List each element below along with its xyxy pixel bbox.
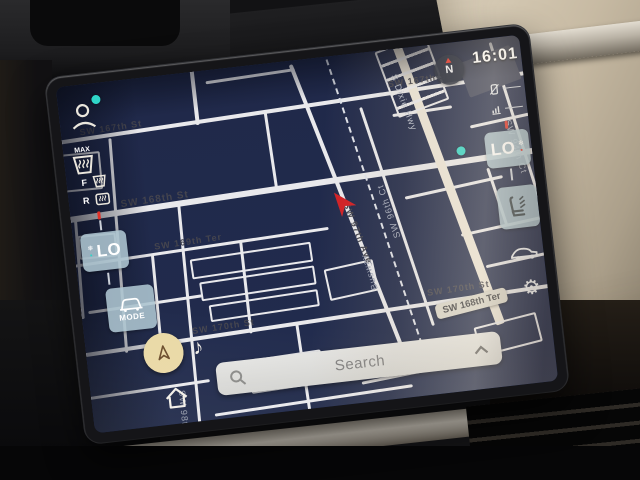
driver-temp-control[interactable]: ❄ ▪ LO: [80, 230, 130, 273]
profile-notification-dot: [91, 95, 101, 105]
transit-stop-dot: [456, 146, 466, 156]
drive-mode-button[interactable]: MODE: [105, 284, 158, 333]
signal-icon: [491, 103, 503, 115]
passenger-temp-control[interactable]: LO ❄ ▪: [484, 128, 532, 169]
status-divider: [503, 86, 521, 90]
media-button[interactable]: ♪: [185, 334, 212, 363]
screen-content: SW 167th St SW 167th St SW 168th St SW 1…: [56, 35, 558, 434]
front-defrost-icon: [89, 173, 110, 189]
dashboard-bottom: [0, 446, 640, 480]
seat-mini-icon: ▪: [90, 252, 93, 259]
phone-icon: [488, 83, 500, 95]
vehicle-settings-button[interactable]: [506, 240, 542, 266]
passenger-seat-climate-button[interactable]: [496, 184, 540, 230]
front-defrost-label: F: [81, 178, 88, 189]
rear-defrost-icon: [92, 191, 113, 207]
seat-mini-icon: ▪: [520, 147, 523, 154]
navigation-arrow-icon: [152, 342, 174, 364]
touchscreen: SW 167th St SW 167th St SW 168th St SW 1…: [45, 24, 570, 445]
drive-mode-label: MODE: [119, 310, 146, 322]
gear-icon: ⚙: [521, 273, 542, 300]
home-button[interactable]: [160, 382, 193, 413]
dashboard-cowl-inset: [30, 0, 180, 46]
chevron-up-icon[interactable]: [473, 344, 490, 356]
home-icon: [162, 384, 191, 411]
passenger-temp-value: LO: [490, 138, 517, 161]
map-road-sw96ct: [359, 107, 435, 326]
driver-temp-value: LO: [96, 239, 123, 262]
rear-defrost-label: R: [83, 195, 91, 206]
compass-label: N: [445, 63, 454, 76]
settings-button[interactable]: ⚙: [516, 271, 547, 302]
search-icon: [228, 367, 248, 387]
seat-icon: [505, 193, 532, 222]
music-note-icon: ♪: [192, 336, 205, 361]
compass-north-needle: [445, 58, 452, 64]
car-side-icon: [509, 243, 541, 262]
status-divider: [505, 105, 523, 109]
profile-button[interactable]: [63, 97, 103, 135]
dashboard-photo: { "device": {"description": "car infotai…: [0, 0, 640, 480]
map-road: [264, 112, 279, 192]
